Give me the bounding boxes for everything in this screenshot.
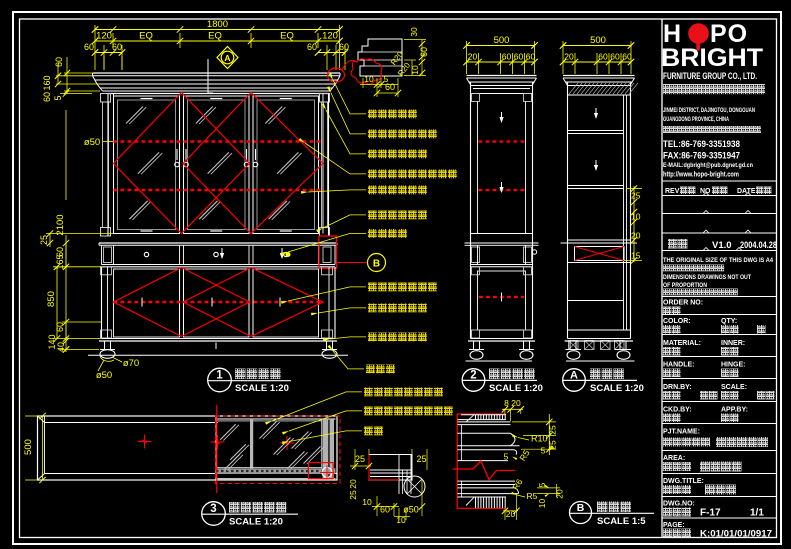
svg-text:25: 25 xyxy=(355,454,365,464)
svg-text:SCALE 1:20: SCALE 1:20 xyxy=(590,383,644,394)
svg-text:60: 60 xyxy=(380,505,390,515)
svg-text:F-17: F-17 xyxy=(700,508,721,519)
svg-text:60: 60 xyxy=(42,92,52,102)
svg-text:EQ: EQ xyxy=(139,31,153,42)
svg-text:EQ: EQ xyxy=(208,31,222,42)
svg-text:5: 5 xyxy=(541,446,546,456)
svg-text:20: 20 xyxy=(564,52,574,62)
svg-text:JINMEI DISTRICT, DAJINGTOU, DO: JINMEI DISTRICT, DAJINGTOU, DONGGUAN xyxy=(663,107,755,114)
svg-text:2100: 2100 xyxy=(55,214,66,235)
svg-text:K:01/01/01/0917: K:01/01/01/0917 xyxy=(700,529,772,540)
svg-text:8: 8 xyxy=(504,398,509,408)
svg-text:CKD.BY:: CKD.BY: xyxy=(663,407,692,414)
svg-text:850: 850 xyxy=(46,291,57,307)
svg-text:NO: NO xyxy=(700,188,711,195)
svg-text:REV: REV xyxy=(665,188,680,195)
svg-text:APP.BY:: APP.BY: xyxy=(721,407,748,414)
svg-text:10: 10 xyxy=(537,499,547,509)
svg-text:R10: R10 xyxy=(531,434,548,444)
svg-text:20: 20 xyxy=(468,52,478,62)
svg-text:B: B xyxy=(577,502,585,514)
svg-text:E-MAIL:dgbright@pub.dgnet.gd.c: E-MAIL:dgbright@pub.dgnet.gd.cn xyxy=(663,162,753,169)
svg-text:1: 1 xyxy=(216,370,223,382)
svg-text:60: 60 xyxy=(598,52,608,62)
svg-text:20: 20 xyxy=(511,398,521,408)
svg-text:25: 25 xyxy=(416,454,426,464)
svg-text:2: 2 xyxy=(470,370,476,382)
svg-text:60: 60 xyxy=(55,322,65,332)
svg-text:60: 60 xyxy=(610,52,620,62)
svg-text:FURNITURE GROUP CO., LTD.: FURNITURE GROUP CO., LTD. xyxy=(663,71,757,81)
svg-text:ø50: ø50 xyxy=(96,370,112,381)
svg-text:20: 20 xyxy=(631,231,641,241)
svg-text:THE ORIGINAL SIZE OF THIS DWG: THE ORIGINAL SIZE OF THIS DWG IS A4 xyxy=(663,257,773,264)
svg-text:20: 20 xyxy=(348,479,358,489)
svg-text:60: 60 xyxy=(385,82,395,92)
svg-text:500: 500 xyxy=(494,35,510,46)
svg-text:60: 60 xyxy=(339,42,349,52)
svg-text:SCALE:: SCALE: xyxy=(721,384,747,391)
svg-text:DRN.BY:: DRN.BY: xyxy=(663,384,692,391)
svg-text:COLOR:: COLOR: xyxy=(663,318,691,325)
svg-text:60: 60 xyxy=(622,52,632,62)
svg-text:25: 25 xyxy=(548,425,558,435)
svg-text:FAX:86-769-3351947: FAX:86-769-3351947 xyxy=(663,151,740,161)
svg-text:DWG.TITLE:: DWG.TITLE: xyxy=(663,478,704,485)
svg-text:SCALE 1:20: SCALE 1:20 xyxy=(229,517,283,528)
svg-text:MATERIAL:: MATERIAL: xyxy=(663,340,701,347)
svg-text:10: 10 xyxy=(364,74,374,84)
svg-text:60: 60 xyxy=(514,52,524,62)
svg-text:SCALE 1:20: SCALE 1:20 xyxy=(235,383,289,394)
svg-text:BRIGHT: BRIGHT xyxy=(661,44,763,72)
svg-text:ø50: ø50 xyxy=(84,137,100,148)
svg-text:160: 160 xyxy=(42,75,52,90)
svg-text:500: 500 xyxy=(590,35,606,46)
svg-text:PAGE:: PAGE: xyxy=(663,522,685,529)
svg-text:SCALE 1:5: SCALE 1:5 xyxy=(597,516,646,527)
svg-text:AREA:: AREA: xyxy=(663,455,685,462)
svg-text:V1.0: V1.0 xyxy=(712,240,732,251)
svg-text:60: 60 xyxy=(112,42,122,52)
svg-text:500: 500 xyxy=(23,439,34,455)
svg-text:25: 25 xyxy=(631,191,641,201)
svg-text:ø50: ø50 xyxy=(403,505,419,515)
svg-text:60: 60 xyxy=(526,52,536,62)
svg-text:20: 20 xyxy=(555,489,565,499)
svg-text:ORDER NO:: ORDER NO: xyxy=(663,300,703,307)
svg-text:INNER:: INNER: xyxy=(721,340,745,347)
svg-text:OF PROPORTION: OF PROPORTION xyxy=(663,282,707,289)
svg-text:A: A xyxy=(224,53,230,63)
svg-text:60: 60 xyxy=(502,52,512,62)
svg-text:TEL:86-769-3351938: TEL:86-769-3351938 xyxy=(663,139,740,149)
svg-text:ø70: ø70 xyxy=(123,358,139,369)
svg-text:10: 10 xyxy=(362,497,372,507)
svg-text:QTY:: QTY: xyxy=(721,318,737,325)
svg-text:60: 60 xyxy=(84,42,94,52)
svg-text:A: A xyxy=(570,370,578,382)
svg-text:120: 120 xyxy=(96,31,112,42)
svg-text:2004.04.28: 2004.04.28 xyxy=(740,240,777,251)
svg-text:HANDLE:: HANDLE: xyxy=(663,362,695,369)
svg-text:60: 60 xyxy=(54,57,64,67)
svg-text:GUANGDONG PROVINCE, CHINA: GUANGDONG PROVINCE, CHINA xyxy=(663,116,729,123)
svg-text:PJT.NAME:: PJT.NAME: xyxy=(663,429,700,436)
svg-text:SCALE 1:20: SCALE 1:20 xyxy=(489,383,543,394)
svg-text:DWG.NO:: DWG.NO: xyxy=(663,501,695,508)
svg-text:http://www.hopo-bright.com: http://www.hopo-bright.com xyxy=(663,172,739,179)
svg-text:120: 120 xyxy=(322,31,338,42)
svg-text:5: 5 xyxy=(504,452,509,462)
svg-text:DIMENSIONS DRAWINGS NOT OUT: DIMENSIONS DRAWINGS NOT OUT xyxy=(663,274,752,281)
svg-text:1800: 1800 xyxy=(207,19,228,30)
svg-text:1/1: 1/1 xyxy=(750,508,764,519)
svg-text:R5: R5 xyxy=(527,491,538,501)
svg-text:5: 5 xyxy=(53,95,63,100)
svg-text:60: 60 xyxy=(307,42,317,52)
svg-text:EQ: EQ xyxy=(280,31,294,42)
svg-text:HINGE:: HINGE: xyxy=(721,362,746,369)
svg-text:25: 25 xyxy=(348,490,358,500)
svg-text:30: 30 xyxy=(409,27,419,37)
svg-text:B: B xyxy=(373,259,380,270)
svg-text:3: 3 xyxy=(210,503,216,515)
